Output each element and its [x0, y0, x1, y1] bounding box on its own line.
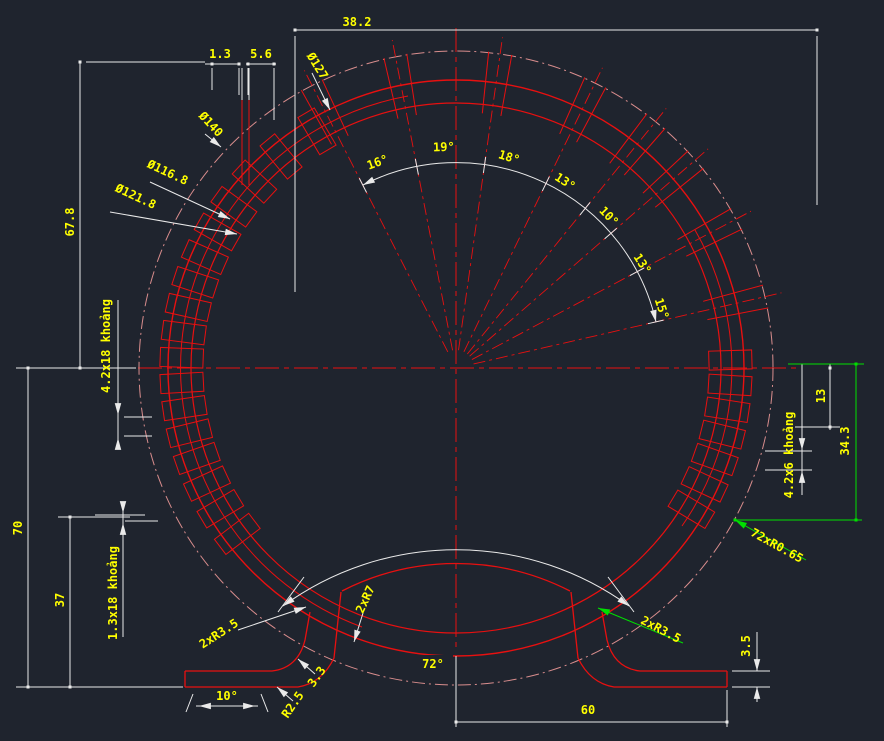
viewport-background: [0, 0, 884, 741]
dim-67-8-label: 67.8: [63, 208, 77, 237]
slots-right-pitch-label: 4.2x6 khoảng: [782, 412, 796, 499]
dim-34-3-label: 34.3: [838, 427, 852, 456]
slots-left-pitch-label: 4.2x18 khoảng: [99, 299, 113, 393]
dim-38-2-label: 38.2: [343, 15, 372, 29]
slots-left-gap-label: 1.3x18 khoảng: [106, 546, 120, 640]
dim-60-label: 60: [581, 703, 595, 717]
dim-3-5-label: 3.5: [739, 635, 753, 657]
dim-1-3-label: 1.3: [209, 47, 231, 61]
dim-70-label: 70: [11, 521, 25, 535]
cad-drawing-canvas[interactable]: 38.2 1.3 5.6 Ø127 Ø140 Ø116.8 Ø121.8 67.…: [0, 0, 884, 741]
angle-10-foot-label: 10°: [216, 689, 238, 703]
angle-72-label: 72°: [422, 657, 444, 671]
angle-19-label: 19°: [433, 140, 455, 155]
dim-37-label: 37: [53, 593, 67, 607]
dim-13-label: 13: [814, 389, 828, 403]
dim-5-6-label: 5.6: [250, 47, 272, 61]
